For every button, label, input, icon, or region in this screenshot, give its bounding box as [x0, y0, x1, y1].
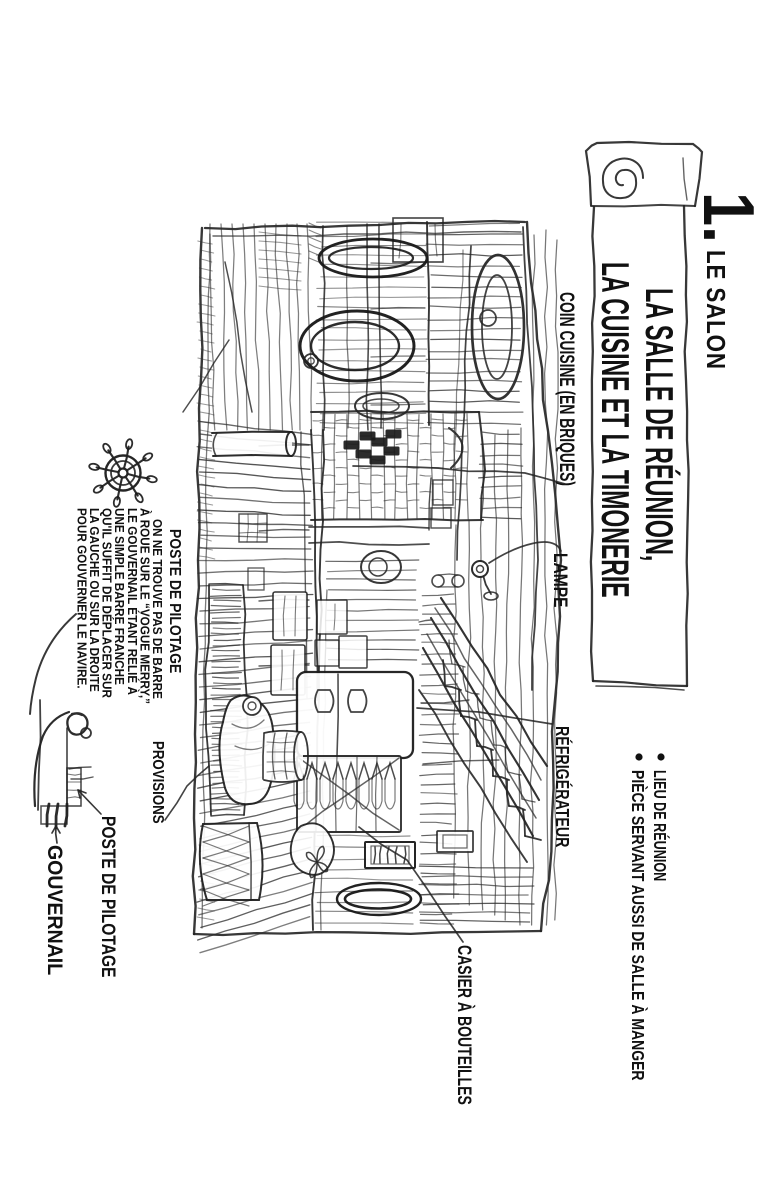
svg-text:COIN CUISINE (EN BRIQUES): COIN CUISINE (EN BRIQUES) — [555, 292, 579, 486]
svg-text:LE SALON: LE SALON — [701, 250, 730, 370]
svg-text:LA CUISINE ET LA TIMONERIE: LA CUISINE ET LA TIMONERIE — [593, 262, 637, 598]
svg-text:POSTE DE PILOTAGE: POSTE DE PILOTAGE — [98, 816, 120, 977]
svg-text:RÉFRIGÉRATEUR: RÉFRIGÉRATEUR — [552, 726, 573, 848]
svg-text:POSTE DE PILOTAGE: POSTE DE PILOTAGE — [166, 529, 184, 673]
svg-text:GOUVERNAIL: GOUVERNAIL — [43, 845, 66, 975]
svg-text:PIÈCE SERVANT AUSSI DE SALLE À: PIÈCE SERVANT AUSSI DE SALLE À MANGER — [628, 770, 649, 1081]
svg-text:LIEU DE RÉUNION: LIEU DE RÉUNION — [649, 770, 669, 881]
svg-text:POUR GOUVERNER LE NAVIRE.: POUR GOUVERNER LE NAVIRE. — [74, 508, 88, 689]
svg-text:PROVISIONS: PROVISIONS — [149, 741, 166, 824]
svg-text:CASIER À BOUTEILLES: CASIER À BOUTEILLES — [453, 945, 475, 1105]
svg-text:LA SALLE DE RÉUNION,: LA SALLE DE RÉUNION, — [638, 288, 682, 561]
svg-text:LAMPE: LAMPE — [550, 553, 572, 608]
svg-text:1.: 1. — [688, 192, 768, 243]
